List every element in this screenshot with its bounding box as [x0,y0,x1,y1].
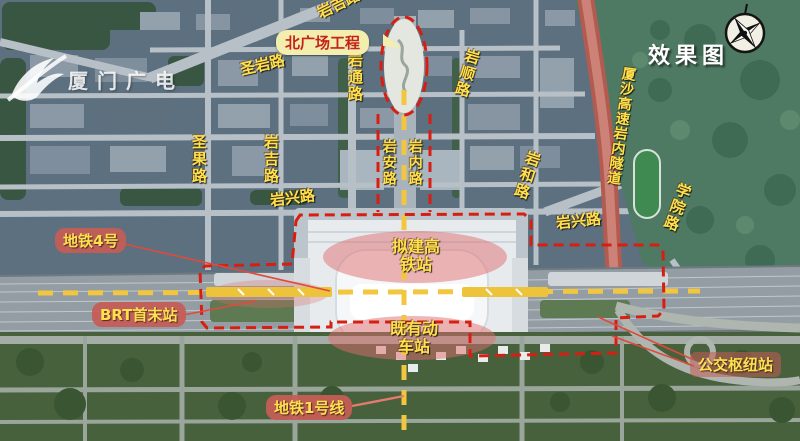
broadcaster-name: 厦门广电 [68,65,184,94]
effect-rendering-canvas: 岩吉路 圣岩路 岩通路 岩顺路 圣果路 岩吉路 岩安路 岩内路 岩兴路 岩和路 … [0,0,800,441]
road-label-yanji-mid: 岩吉路 [262,134,280,185]
bus-hub-callout: 公交枢纽站 [690,352,781,377]
existing-station-label: 既有动车站 [386,320,442,357]
road-label-yanan: 岩安路 [380,139,397,187]
road-label-shengguo: 圣果路 [190,134,208,185]
brt-terminal-callout: BRT首末站 [92,302,186,327]
north-plaza-callout: 北广场工程 [276,30,369,55]
road-label-yannei: 岩内路 [406,139,423,187]
xiamen-media-logo-icon [6,54,68,104]
metro-line4-callout: 地铁4号 [55,228,126,253]
broadcaster-watermark: 厦门广电 [6,54,184,104]
sports-field [634,150,660,218]
brt-lane-west [206,287,332,297]
page-title: 效果图 [648,38,729,70]
road-label-yantong: 岩通路 [346,52,364,103]
planned-hsr-station-label: 拟建高铁站 [387,238,445,275]
compass-icon [720,2,770,56]
metro-line1-callout: 地铁1号线 [266,395,352,420]
brt-lane-east [462,287,548,297]
